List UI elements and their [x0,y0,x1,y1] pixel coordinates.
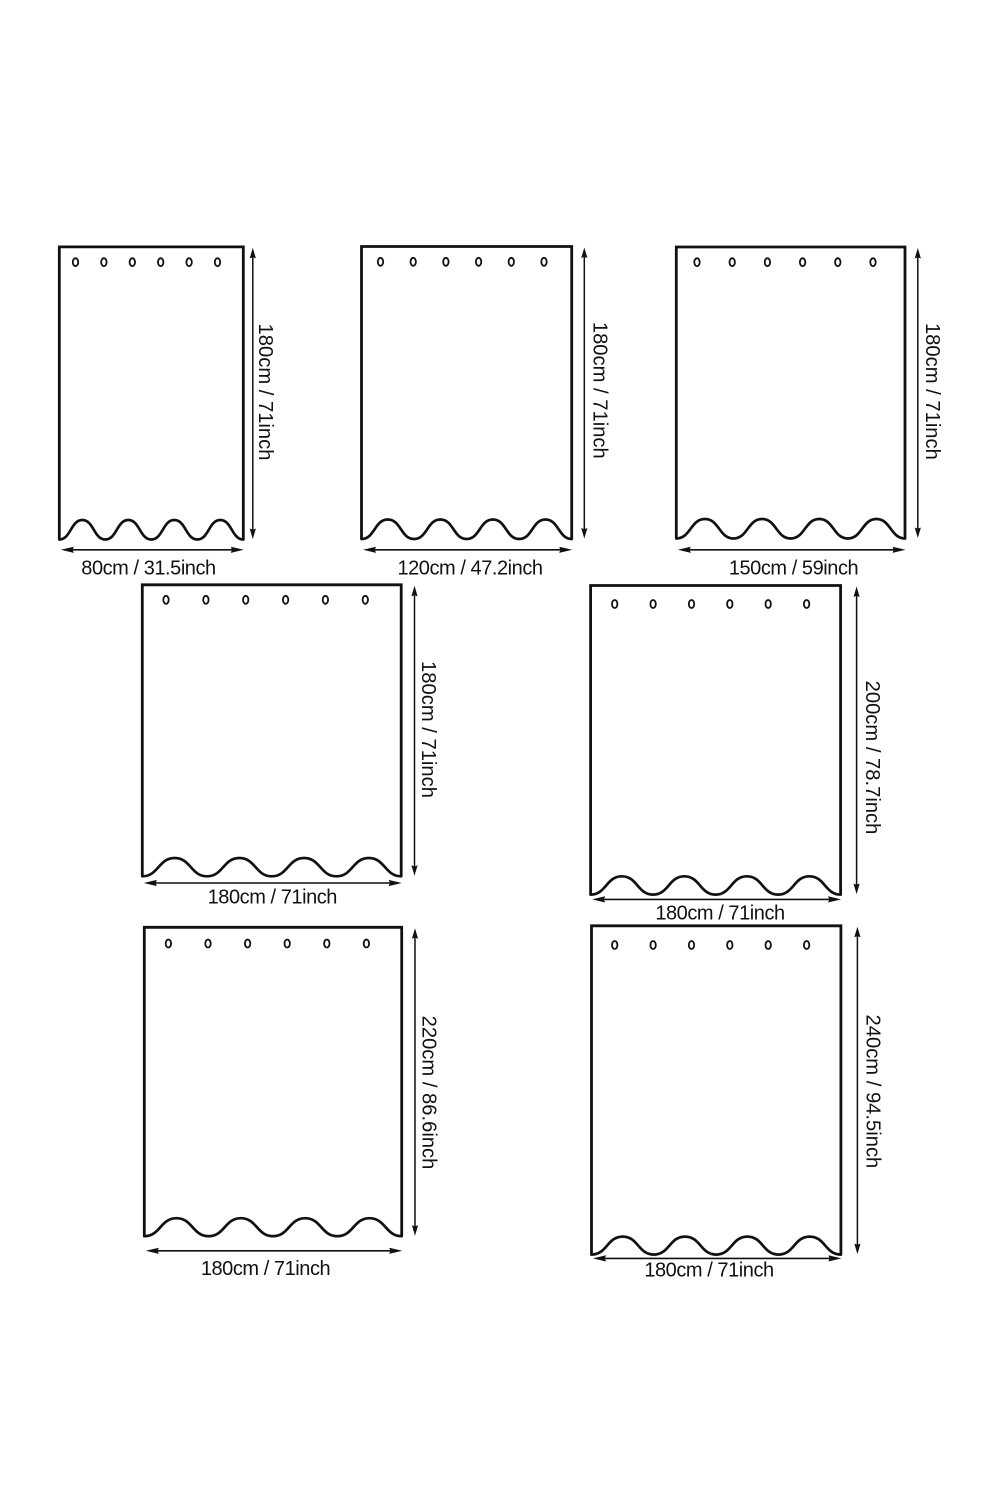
svg-text:180cm / 71inch: 180cm / 71inch [655,903,784,925]
svg-text:120cm / 47.2inch: 120cm / 47.2inch [397,558,542,580]
svg-text:180cm / 71inch: 180cm / 71inch [589,322,611,459]
svg-text:180cm / 71inch: 180cm / 71inch [921,323,943,460]
svg-text:180cm / 71inch: 180cm / 71inch [201,1258,330,1280]
svg-text:200cm / 78.7inch: 200cm / 78.7inch [861,681,883,835]
svg-text:150cm / 59inch: 150cm / 59inch [729,557,858,579]
svg-text:220cm / 86.6inch: 220cm / 86.6inch [418,1016,440,1170]
svg-text:180cm / 71inch: 180cm / 71inch [417,661,439,798]
svg-text:240cm / 94.5inch: 240cm / 94.5inch [862,1015,884,1169]
svg-text:180cm / 71inch: 180cm / 71inch [644,1260,773,1282]
svg-text:180cm / 71inch: 180cm / 71inch [208,887,337,909]
svg-text:180cm / 71inch: 180cm / 71inch [254,324,276,461]
svg-text:80cm / 31.5inch: 80cm / 31.5inch [81,557,215,579]
